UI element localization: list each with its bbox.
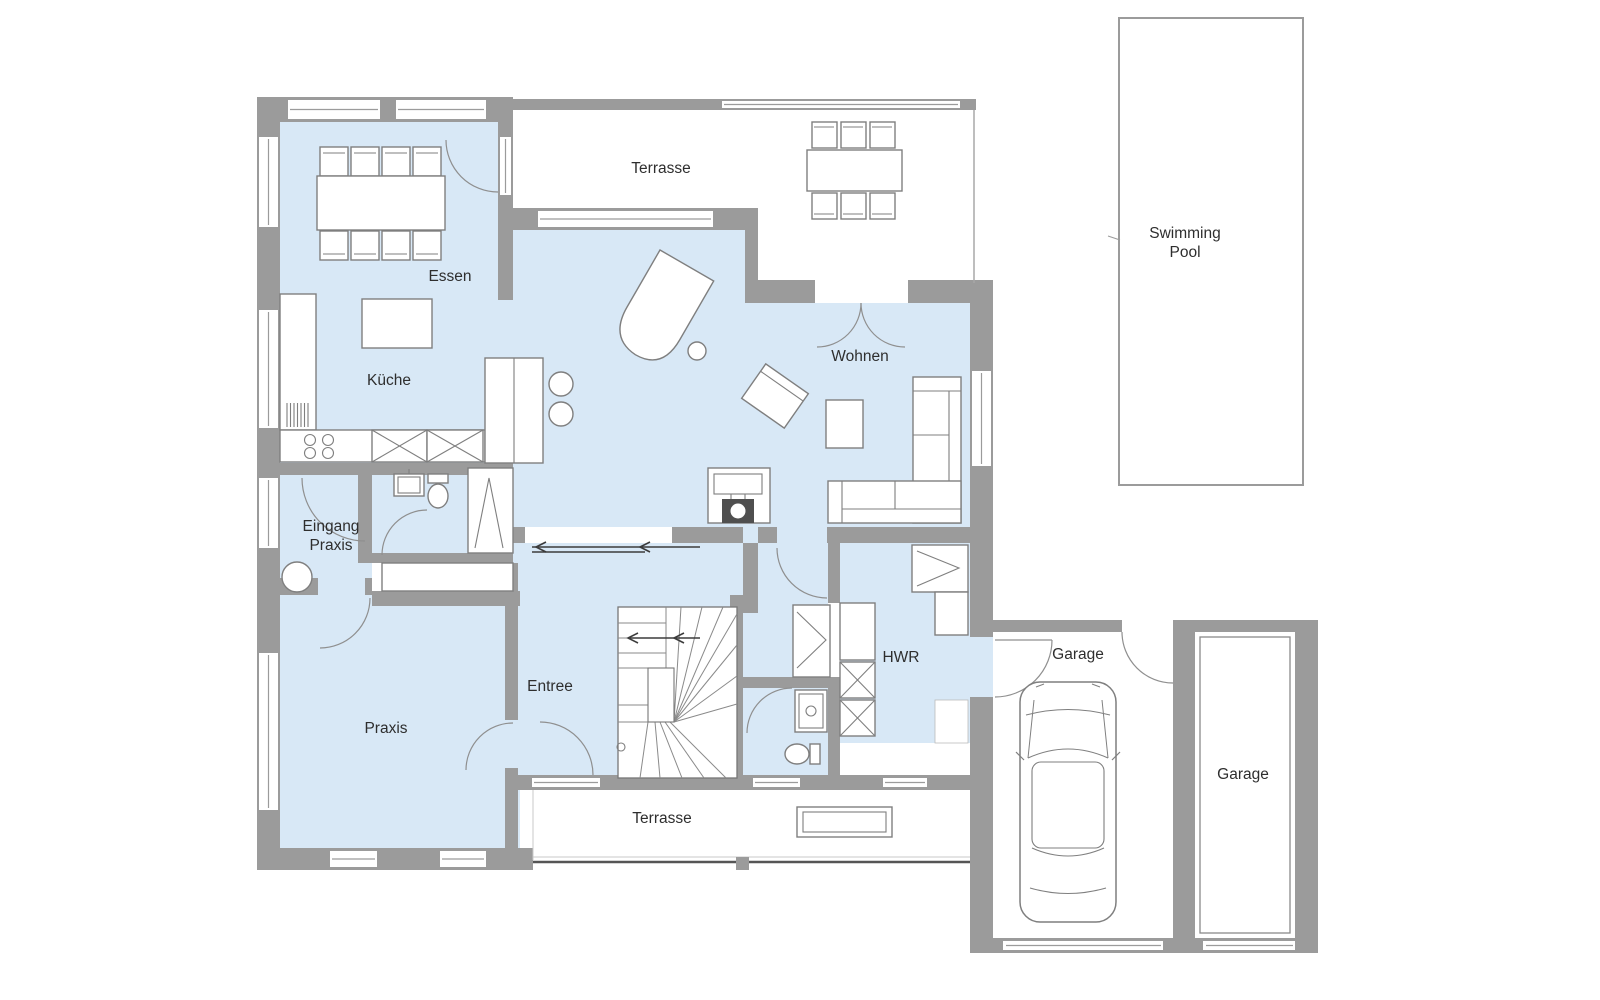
label-essen: Essen (428, 268, 471, 285)
door-gap-praxis (318, 578, 365, 595)
label-wohnen: Wohnen (831, 348, 888, 365)
car (1016, 682, 1120, 922)
garage-right-inner (1200, 637, 1290, 933)
tv-sideboard (708, 468, 770, 523)
stair-void (648, 668, 674, 722)
door-gap-entree-praxis (505, 720, 518, 768)
label-garage-right: Garage (1217, 766, 1269, 783)
eingang-round-table (282, 562, 312, 592)
garden-bench (797, 807, 892, 837)
kitchen-island (362, 299, 432, 348)
entree-sideboard (382, 563, 513, 591)
hwr-garage-passage (967, 637, 993, 697)
room-backhall-sliver (743, 613, 758, 688)
kitchen-appliance-x (372, 430, 483, 462)
radiator (287, 403, 308, 427)
terrace-dining-set (807, 122, 902, 219)
label-eingang-line1: Eingang (303, 518, 360, 535)
bar-stool (549, 372, 573, 396)
hwr-counter (935, 592, 968, 635)
terrasse-post (736, 857, 749, 870)
hwr-cabinet (840, 603, 875, 660)
label-praxis: Praxis (364, 720, 407, 737)
label-hwr: HWR (882, 649, 919, 666)
label-kueche: Küche (367, 372, 411, 389)
coffee-table (826, 400, 863, 448)
toilet (785, 744, 809, 764)
label-terrasse-bottom: Terrasse (632, 810, 691, 827)
door-arc-garage-side (1122, 632, 1173, 683)
coat-closet-mid (468, 468, 513, 553)
floor-plan-page: Essen Küche Wohnen Terrasse Eingang Prax… (0, 0, 1600, 1000)
terrace-table (807, 150, 902, 191)
backhall-closet (793, 605, 830, 677)
label-garage-left: Garage (1052, 646, 1104, 663)
label-pool-line2: Pool (1169, 244, 1200, 261)
shower (795, 690, 827, 732)
terrasse-bottom-outline (533, 790, 970, 870)
toilet-tank (810, 744, 820, 764)
bar-stool (549, 402, 573, 426)
toilet-tank (428, 474, 448, 483)
label-terrasse-top: Terrasse (631, 160, 690, 177)
piano-stool (688, 342, 706, 360)
floor-plan-canvas: Essen Küche Wohnen Terrasse Eingang Prax… (0, 0, 1600, 1000)
toilet (428, 484, 448, 508)
dining-table (317, 176, 445, 230)
label-pool-line1: Swimming (1149, 225, 1220, 242)
label-eingang-line2: Praxis (309, 537, 352, 554)
label-entree: Entree (527, 678, 573, 695)
staircase (617, 607, 737, 778)
swimming-pool (1119, 18, 1303, 485)
